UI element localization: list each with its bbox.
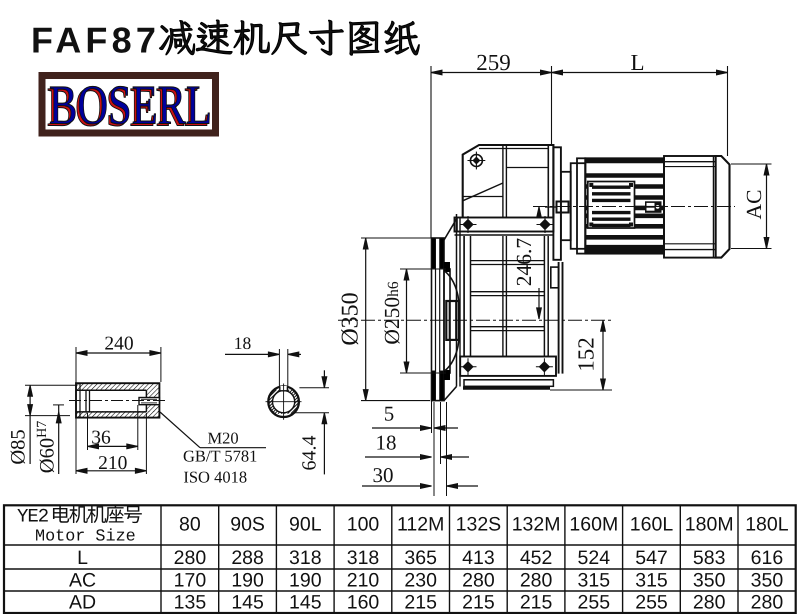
svg-text:30: 30 [373,463,394,487]
svg-text:350: 350 [751,570,784,592]
svg-text:145: 145 [231,592,264,614]
svg-text:616: 616 [751,547,784,569]
svg-text:280: 280 [462,570,495,592]
svg-text:M20: M20 [208,429,239,448]
svg-text:GB/T 5781: GB/T 5781 [183,446,257,465]
svg-text:215: 215 [404,592,437,614]
svg-text:FAF87: FAF87 [31,20,160,61]
svg-text:160M: 160M [569,514,618,536]
svg-text:132S: 132S [456,514,502,536]
svg-text:524: 524 [578,547,611,569]
svg-text:90S: 90S [230,514,265,536]
svg-text:215: 215 [462,592,495,614]
svg-text:100: 100 [347,514,380,536]
svg-text:246.7: 246.7 [512,238,536,287]
svg-text:180M: 180M [685,514,734,536]
svg-text:318: 318 [347,547,380,569]
svg-text:Ø85: Ø85 [8,429,30,464]
svg-text:36: 36 [91,428,111,449]
svg-text:90L: 90L [289,514,322,536]
svg-text:160: 160 [347,592,380,614]
svg-text:64.4: 64.4 [299,436,321,471]
svg-text:AC: AC [69,570,96,592]
svg-text:L: L [77,547,88,569]
svg-text:350: 350 [693,570,726,592]
svg-text:Ø350: Ø350 [338,292,364,345]
svg-text:255: 255 [578,592,611,614]
svg-text:160L: 160L [630,514,674,536]
svg-text:547: 547 [635,547,668,569]
svg-text:Motor Size: Motor Size [35,528,136,547]
svg-text:5: 5 [384,402,395,426]
svg-text:112M: 112M [397,514,444,536]
svg-text:280: 280 [693,592,726,614]
svg-text:413: 413 [462,547,495,569]
svg-text:255: 255 [635,592,668,614]
svg-text:AD: AD [69,592,96,614]
svg-text:365: 365 [404,547,437,569]
svg-text:180L: 180L [745,514,789,536]
svg-text:315: 315 [635,570,668,592]
svg-text:ISO 4018: ISO 4018 [183,467,247,486]
svg-text:132M: 132M [512,514,561,536]
svg-text:80: 80 [179,514,201,536]
svg-text:210: 210 [98,453,127,474]
svg-text:YE2: YE2 [17,506,49,528]
svg-text:18: 18 [376,431,397,455]
svg-text:318: 318 [289,547,322,569]
svg-text:280: 280 [520,570,553,592]
svg-text:18: 18 [234,333,252,353]
svg-text:152: 152 [573,337,598,372]
svg-text:L: L [630,50,644,75]
svg-text:452: 452 [520,547,553,569]
svg-text:230: 230 [404,570,437,592]
svg-text:280: 280 [751,592,784,614]
svg-text:288: 288 [231,547,264,569]
svg-text:170: 170 [174,570,207,592]
svg-text:583: 583 [693,547,726,569]
svg-text:280: 280 [174,547,207,569]
svg-text:315: 315 [578,570,611,592]
svg-text:BOSERL: BOSERL [49,75,212,137]
svg-text:145: 145 [289,592,322,614]
svg-text:190: 190 [289,570,322,592]
svg-text:240: 240 [104,334,133,355]
svg-text:215: 215 [520,592,553,614]
svg-text:259: 259 [476,50,511,75]
svg-text:210: 210 [347,570,380,592]
svg-text:AC: AC [742,190,766,220]
svg-text:135: 135 [174,592,207,614]
svg-text:190: 190 [231,570,264,592]
